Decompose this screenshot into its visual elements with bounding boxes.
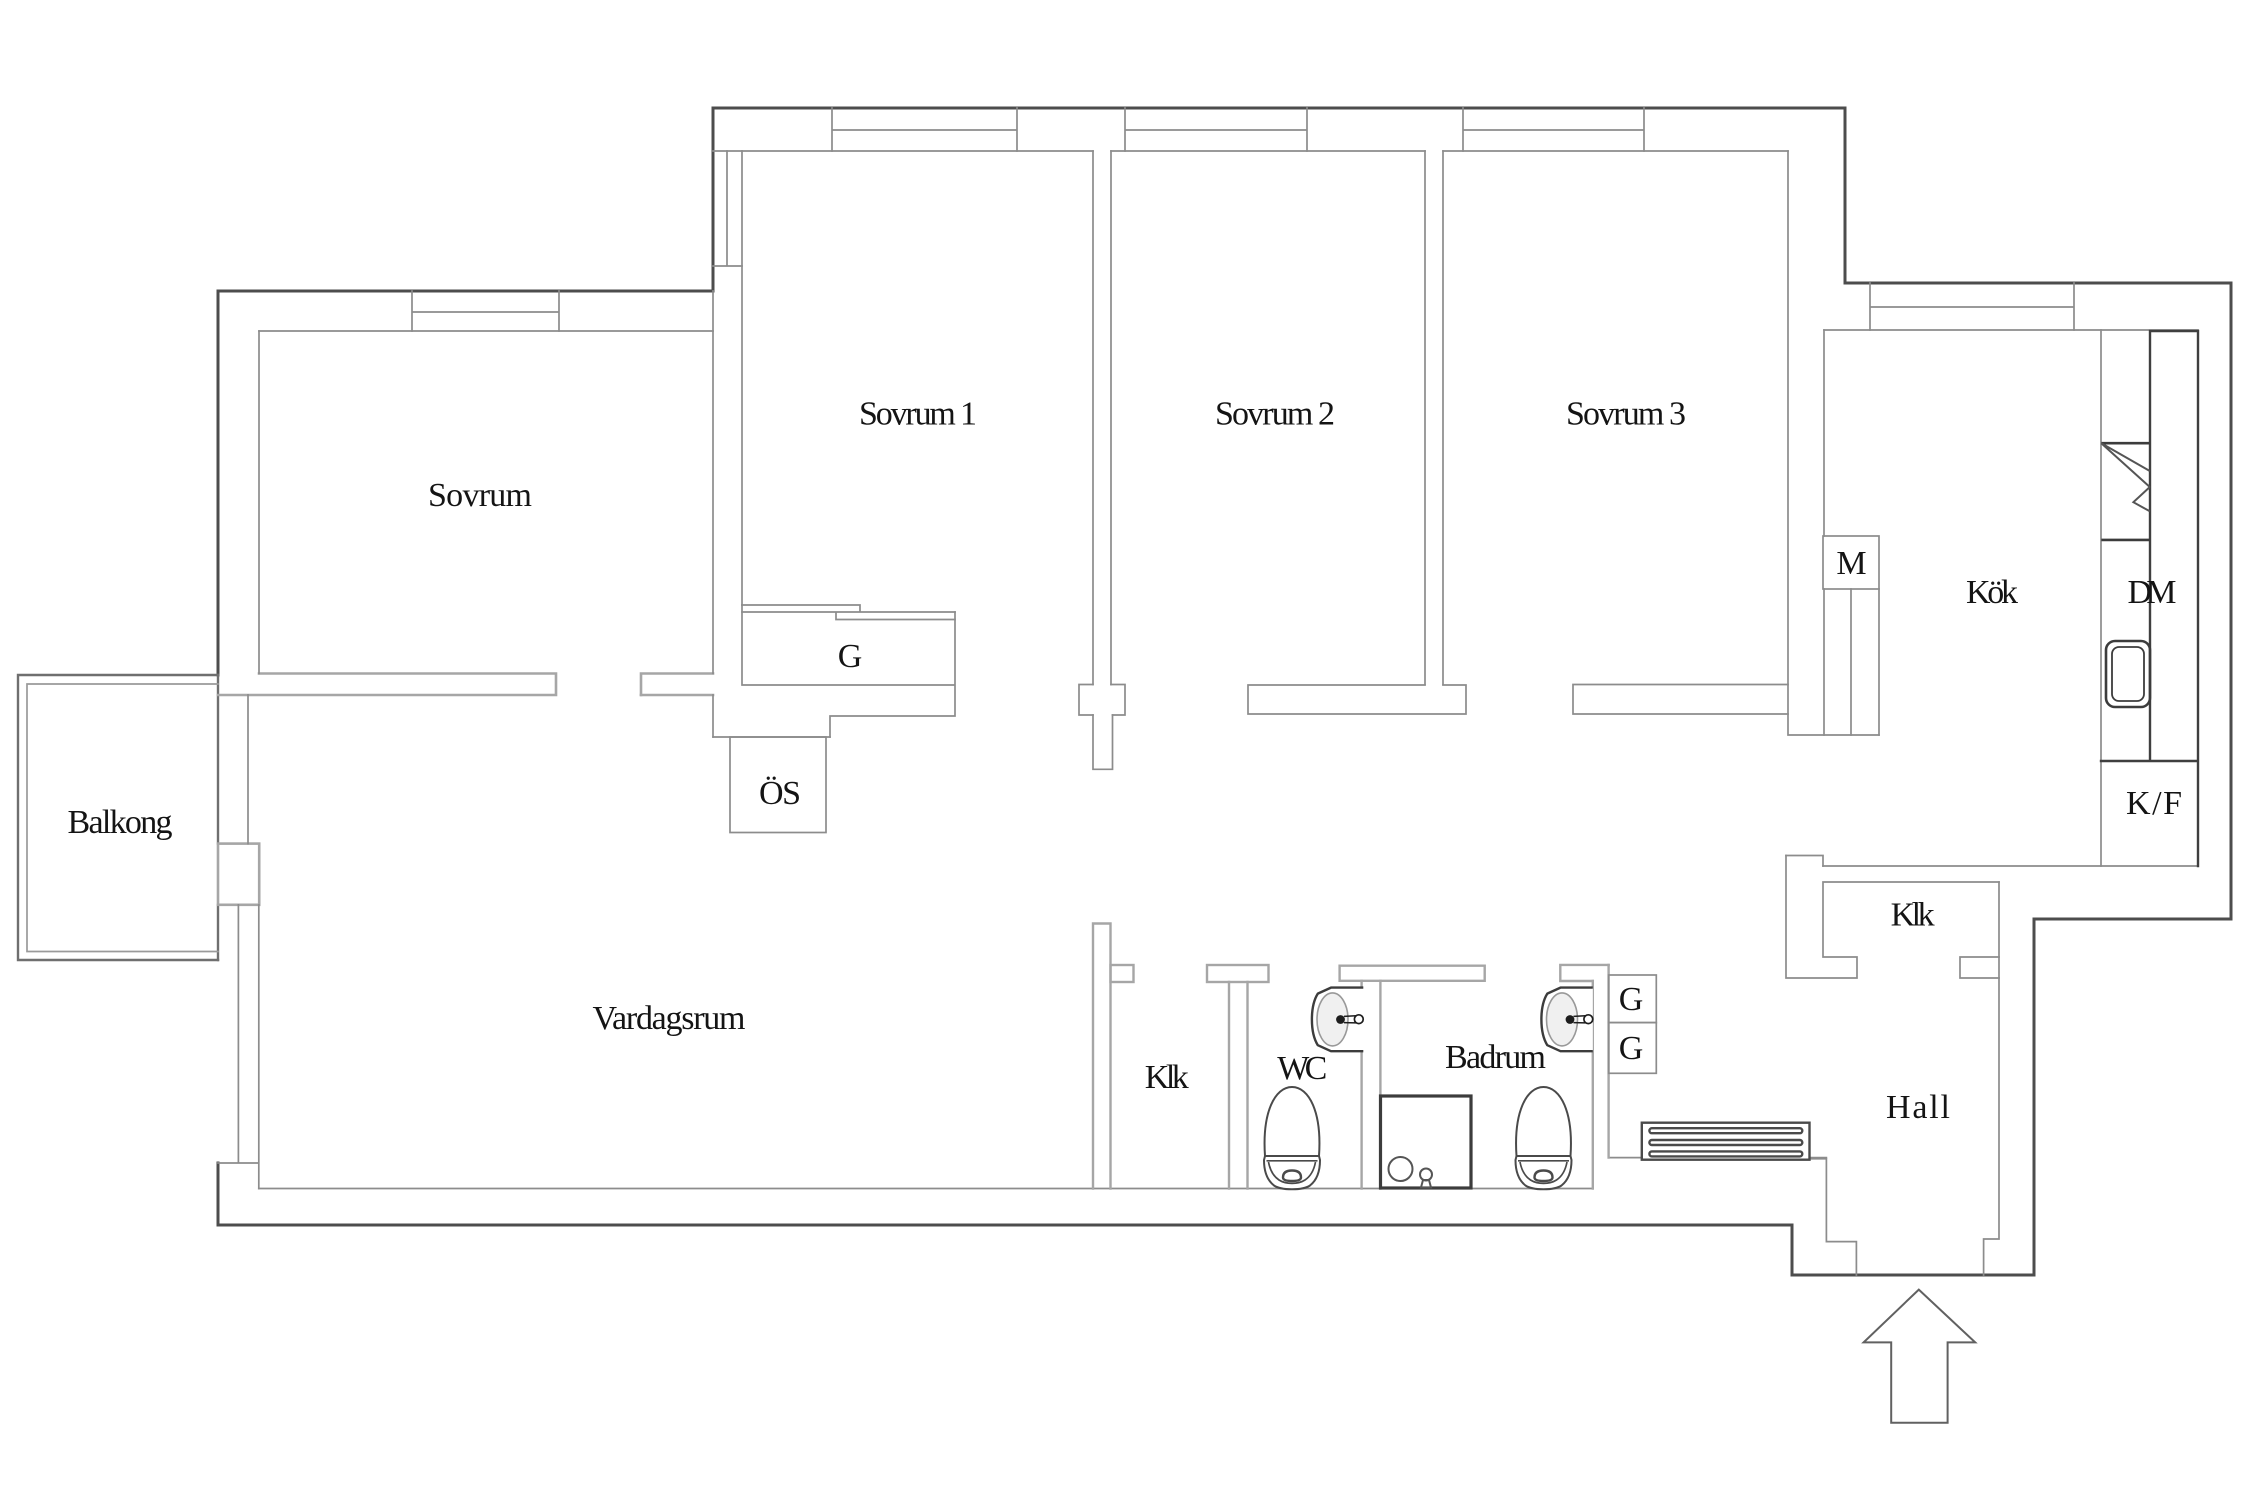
svg-text:Badrum: Badrum bbox=[1445, 1039, 1546, 1076]
svg-text:Kök: Kök bbox=[1966, 574, 2018, 611]
svg-text:ÖS: ÖS bbox=[759, 775, 801, 812]
svg-text:Sovrum 1: Sovrum 1 bbox=[859, 396, 977, 433]
svg-text:Klk: Klk bbox=[1891, 897, 1935, 934]
svg-text:G: G bbox=[1619, 981, 1644, 1018]
svg-text:G: G bbox=[1619, 1030, 1644, 1067]
svg-text:DM: DM bbox=[2128, 574, 2177, 611]
svg-text:Sovrum 2: Sovrum 2 bbox=[1215, 396, 1335, 433]
svg-text:Sovrum: Sovrum bbox=[428, 477, 532, 514]
svg-text:Sovrum 3: Sovrum 3 bbox=[1566, 396, 1686, 433]
svg-text:M: M bbox=[1836, 545, 1866, 582]
svg-text:Hall: Hall bbox=[1886, 1089, 1950, 1126]
svg-text:K/F: K/F bbox=[2126, 785, 2182, 822]
svg-text:Klk: Klk bbox=[1145, 1059, 1189, 1096]
svg-text:Vardagsrum: Vardagsrum bbox=[593, 1000, 746, 1037]
svg-text:WC: WC bbox=[1277, 1050, 1327, 1087]
svg-text:G: G bbox=[838, 638, 863, 675]
svg-text:Balkong: Balkong bbox=[68, 804, 173, 841]
